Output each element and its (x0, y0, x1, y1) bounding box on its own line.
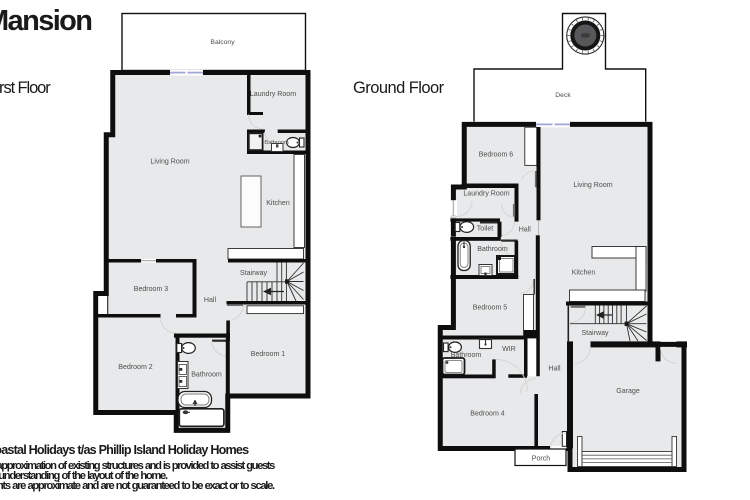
svg-text:Stairway: Stairway (240, 270, 267, 277)
svg-text:Living Room: Living Room (150, 159, 189, 166)
svg-text:Living Room: Living Room (573, 182, 612, 189)
svg-text:Kitchen: Kitchen (572, 270, 596, 277)
svg-text:Laundry Room: Laundry Room (463, 191, 509, 198)
svg-text:Balcony: Balcony (210, 39, 235, 46)
svg-text:Bedroom 3: Bedroom 3 (134, 286, 169, 293)
svg-text:Bathroom: Bathroom (477, 246, 508, 253)
svg-text:WIR: WIR (502, 346, 516, 353)
svg-text:Bathroom: Bathroom (264, 140, 289, 146)
svg-text:Bedroom 6: Bedroom 6 (479, 152, 514, 159)
svg-text:Deck: Deck (555, 92, 571, 99)
svg-text:Garage: Garage (616, 388, 640, 395)
svg-text:Hall: Hall (204, 297, 217, 304)
svg-text:Bedroom 4: Bedroom 4 (470, 411, 505, 418)
svg-text:Hall: Hall (548, 366, 561, 373)
svg-text:Bathroom: Bathroom (191, 372, 222, 379)
svg-text:Stairway: Stairway (581, 330, 608, 337)
svg-text:Bedroom 5: Bedroom 5 (473, 305, 508, 312)
svg-text:Bedroom 1: Bedroom 1 (251, 351, 286, 358)
svg-text:Laundry Room: Laundry Room (250, 91, 296, 98)
svg-text:Hall: Hall (519, 227, 532, 234)
svg-text:Porch: Porch (532, 456, 550, 463)
svg-text:Kitchen: Kitchen (266, 200, 290, 207)
svg-text:Toilet: Toilet (477, 226, 493, 233)
svg-text:Bedroom 2: Bedroom 2 (118, 364, 153, 371)
